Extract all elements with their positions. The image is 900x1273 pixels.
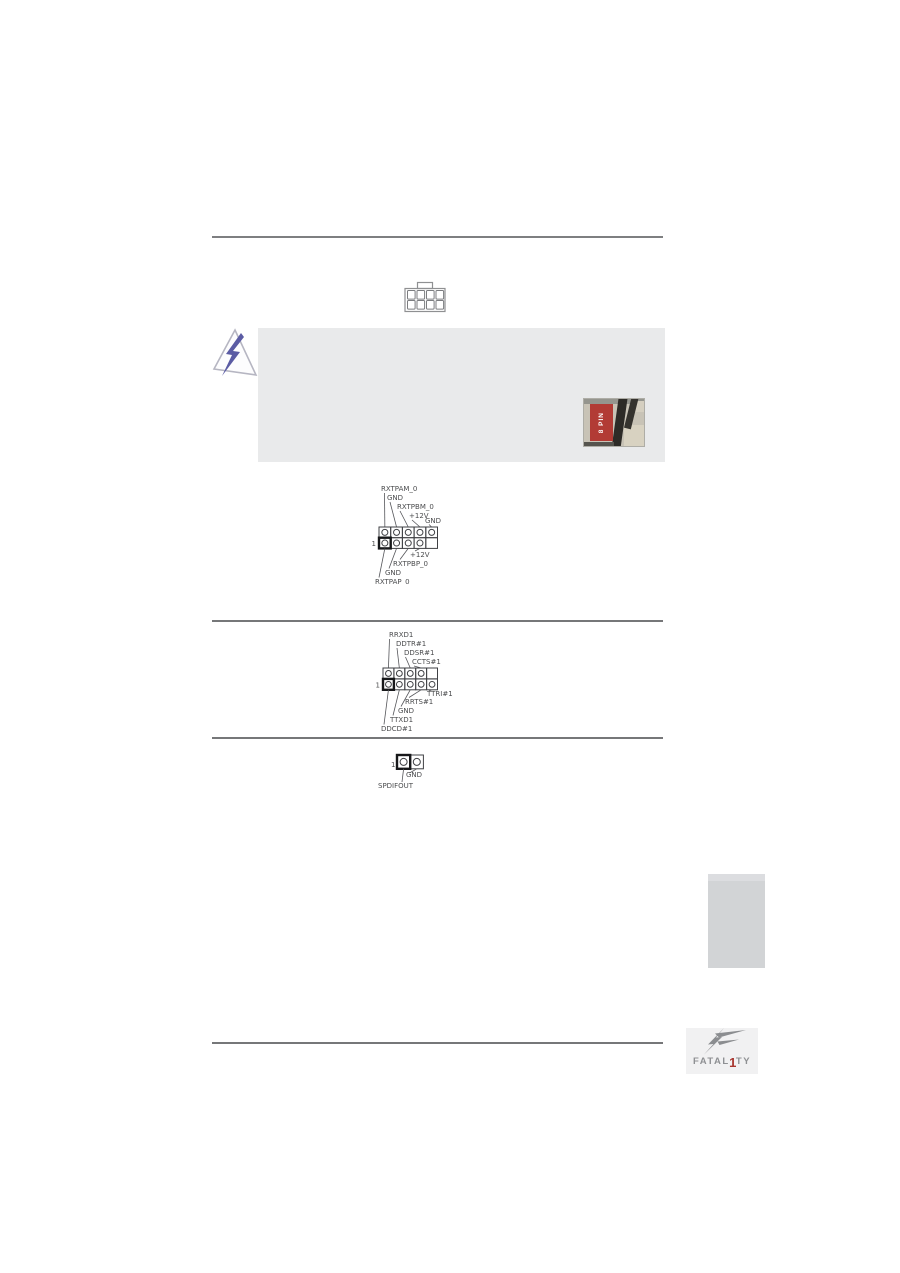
pin-label: DDCD#1: [381, 725, 412, 733]
logo-text-one: 1: [729, 1058, 736, 1068]
horizontal-rule-3: [212, 737, 663, 739]
pin1-marker-cell: [383, 679, 394, 690]
pin-label: GND: [406, 771, 422, 779]
pin-label: RXTPAM_0: [381, 485, 417, 493]
com-header-diagram: RRXD1 DDTR#1 DDSR#1 CCTS#1 1 TTRI: [355, 623, 485, 736]
pin-label: RRXD1: [389, 631, 413, 639]
pin-label: RXTPBM_0: [397, 503, 434, 511]
manual-page: 8 PIN RXTPAM_0 GND RXTPBM_0 +12V GND: [0, 0, 900, 1273]
photo-red-sticker: 8 PIN: [590, 404, 613, 441]
warning-lightning-icon: [211, 328, 259, 382]
pin-label: SPDIFOUT: [378, 782, 414, 790]
section-tab: [708, 874, 765, 968]
horizontal-rule-bottom: [212, 1042, 663, 1044]
pin-label: RXTPAP_0: [375, 578, 410, 585]
fatal1ty-wordmark: FATAL1TY: [693, 1057, 751, 1067]
atx-8pin-connector-icon: [403, 281, 447, 313]
pin-label: GND: [425, 517, 441, 525]
pin-label: CCTS#1: [412, 658, 441, 666]
pin1-number: 1: [391, 761, 395, 769]
pin-label: GND: [385, 569, 401, 577]
fatal1ty-mark-icon: [696, 1028, 748, 1056]
pin1-number: 1: [372, 540, 376, 548]
pin1-marker-cell: [397, 755, 410, 769]
power-header-diagram: RXTPAM_0 GND RXTPBM_0 +12V GND 1: [355, 481, 485, 585]
spdif-header-diagram: 1 GND SPDIFOUT: [360, 742, 470, 796]
pin-label: RRTS#1: [405, 698, 433, 706]
photo-detail: [584, 442, 614, 447]
pin-label: GND: [387, 494, 403, 502]
horizontal-rule-2: [212, 620, 663, 622]
pin-label: DDSR#1: [404, 649, 434, 657]
fatal1ty-logo: FATAL1TY: [686, 1028, 758, 1074]
pin-label: TTXD1: [389, 716, 413, 724]
pin-label: +12V: [410, 551, 430, 559]
pin-label: GND: [398, 707, 414, 715]
photo-sticker-label: 8 PIN: [598, 412, 605, 433]
logo-text-post: TY: [736, 1057, 751, 1067]
pin-label: RXTPBP_0: [393, 560, 428, 568]
pin-label: TTRI#1: [426, 690, 453, 698]
pin1-marker-cell: [379, 538, 391, 549]
logo-text-pre: FATAL: [693, 1057, 730, 1067]
horizontal-rule-top: [212, 236, 663, 238]
pin1-number: 1: [376, 682, 380, 690]
8pin-connector-photo: 8 PIN: [583, 398, 645, 447]
pin-label: DDTR#1: [396, 640, 426, 648]
